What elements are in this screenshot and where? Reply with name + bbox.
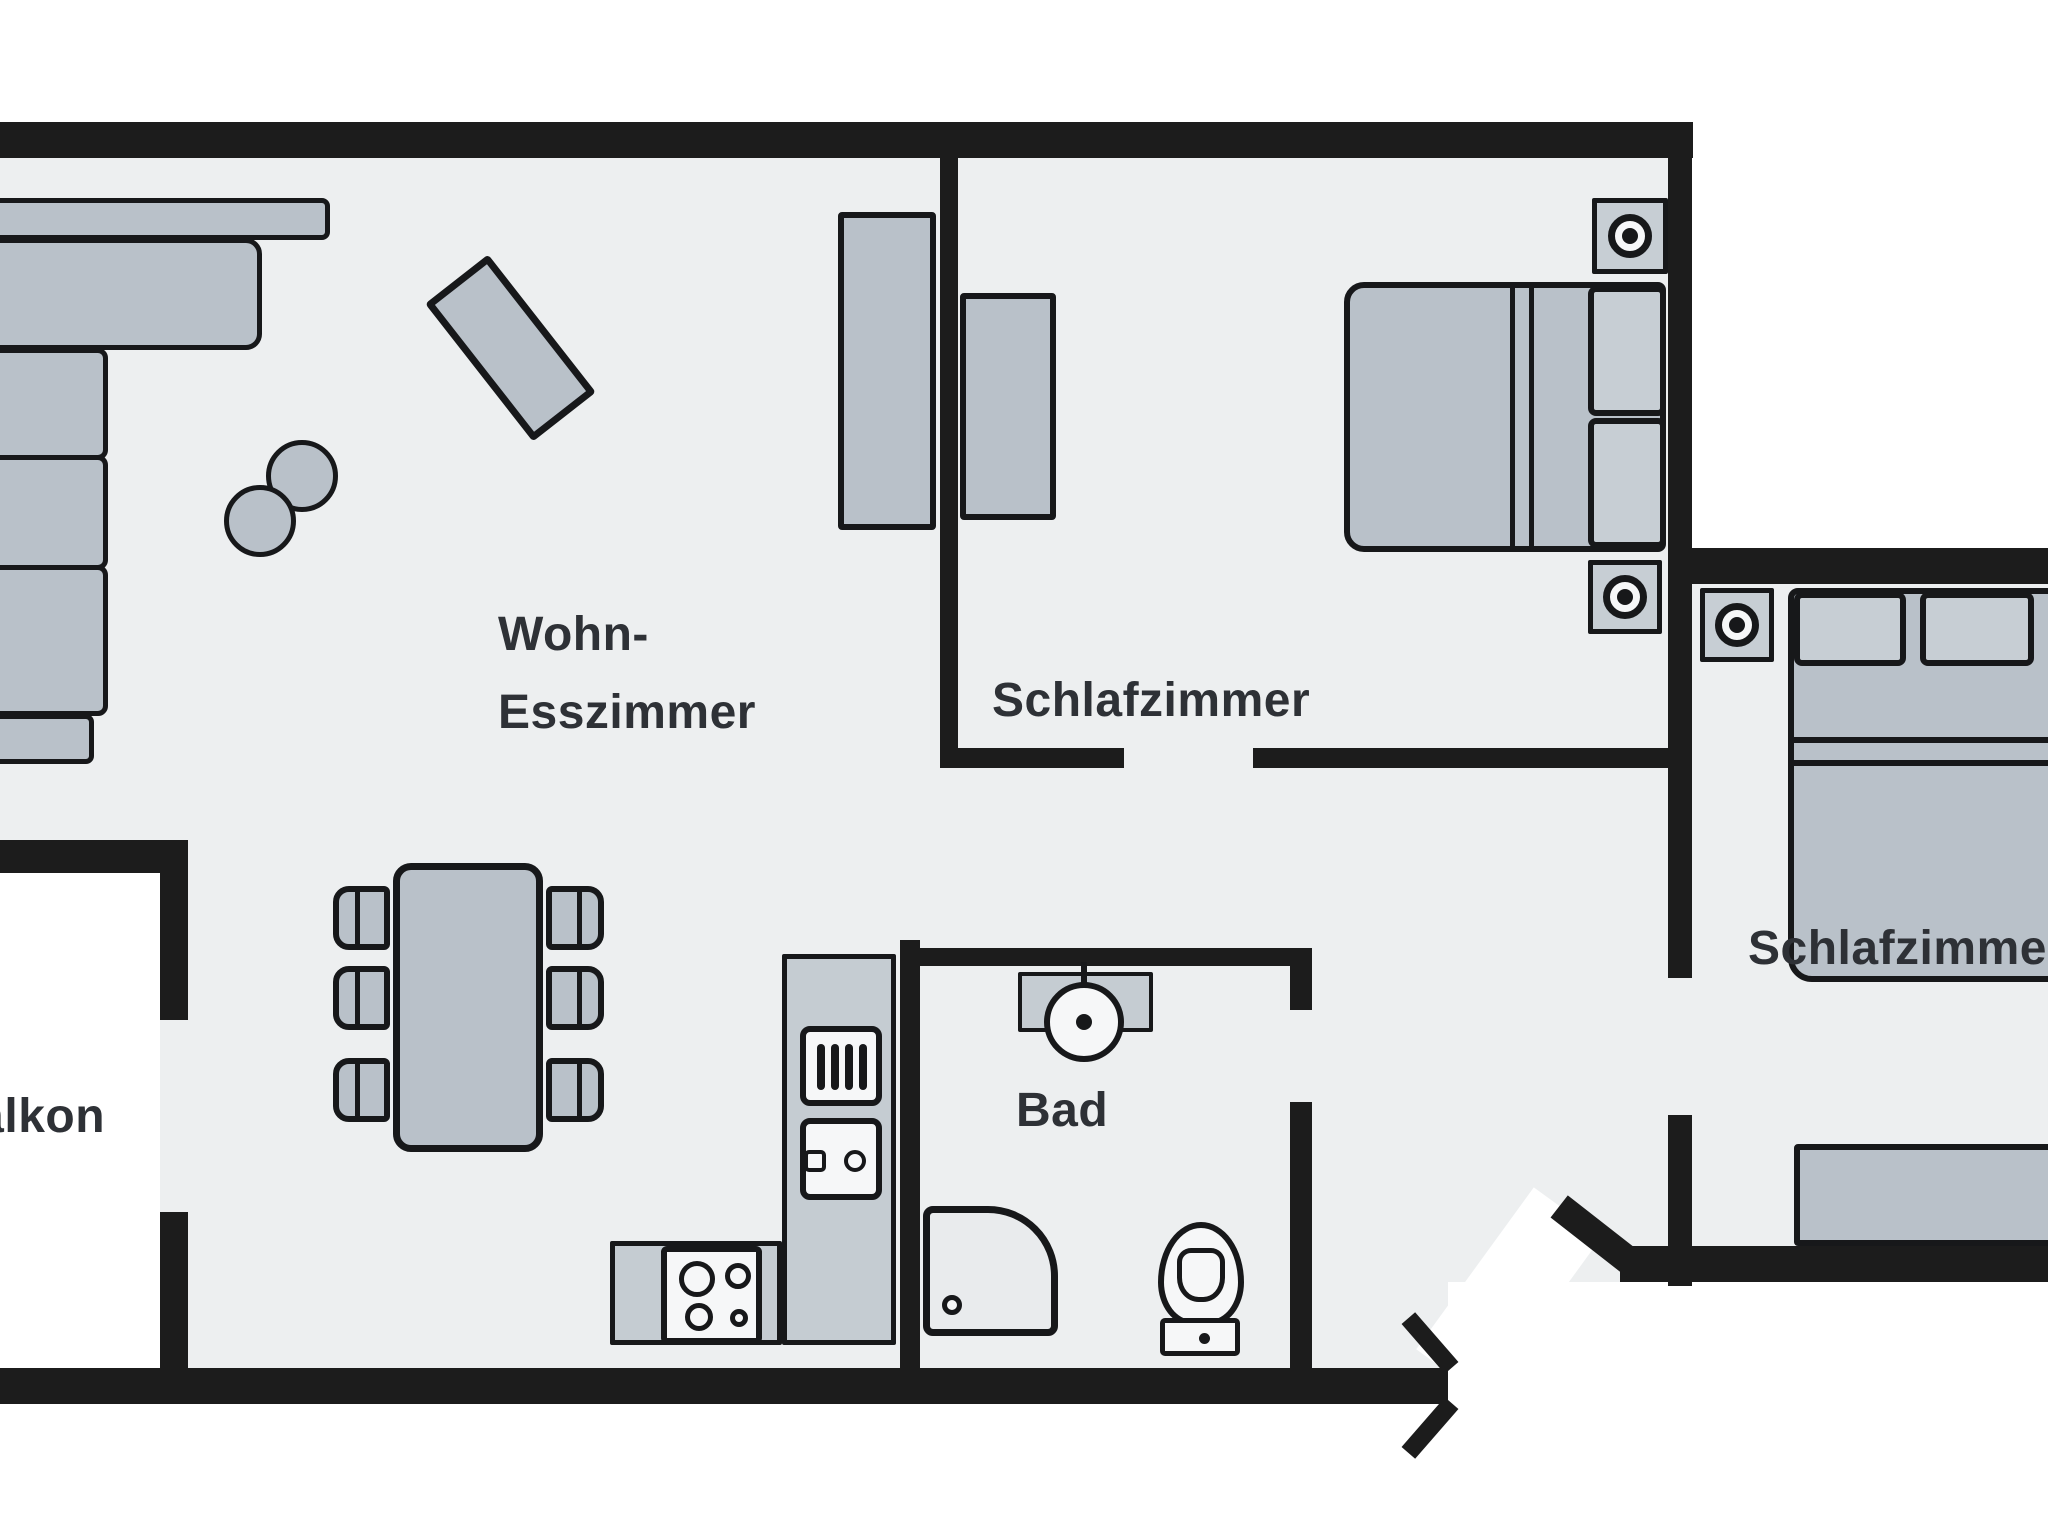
dining-chair — [333, 1058, 390, 1122]
room-label-living: Wohn- Esszimmer — [498, 596, 756, 752]
room-label-bathroom: Bad — [1016, 1072, 1108, 1150]
wall-bedroom1-bottom-left — [940, 748, 1124, 768]
dining-chair — [546, 886, 604, 950]
sofa-seat-top — [0, 238, 262, 350]
wardrobe-bedroom1 — [960, 293, 1056, 520]
room-label-balcony: Balkon — [0, 1078, 105, 1156]
wall-bottom-exterior — [0, 1368, 1448, 1404]
wall-top-exterior — [0, 122, 1693, 158]
nightstand-lamp-icon — [1588, 560, 1662, 634]
dining-chair — [546, 966, 604, 1030]
wall-bedroom2-top — [1692, 548, 2048, 584]
sofa-seat-2 — [0, 455, 108, 570]
wall-bath-right-lower — [1290, 1102, 1312, 1368]
wall-bath-right-upper — [1290, 948, 1312, 1010]
room-label-bedroom1: Schlafzimmer — [992, 662, 1310, 740]
nightstand-lamp-icon — [1700, 588, 1774, 662]
wall-bedroom2-bottom — [1620, 1246, 2048, 1282]
wall-bedroom1-bottom-right — [1253, 748, 1670, 768]
dining-chair — [333, 886, 390, 950]
wall-bath-left — [900, 940, 920, 1368]
dresser-bedroom2 — [1794, 1144, 2048, 1246]
pillow — [1794, 592, 1906, 666]
wardrobe-living — [838, 212, 936, 530]
kitchen-sink-icon — [800, 1118, 882, 1200]
sofa-seat-3 — [0, 565, 108, 716]
pillow — [1588, 286, 1666, 416]
room-label-bedroom2: Schlafzimmer — [1748, 910, 2048, 988]
living-label-line1: Wohn- — [498, 596, 756, 674]
dishwasher-icon — [800, 1026, 882, 1106]
pouf-left — [224, 485, 296, 557]
wall-balcony-lower-stub — [160, 1212, 188, 1368]
floor-plan: Wohn- Esszimmer Schlafzimmer Schlafzimme… — [0, 0, 2048, 1538]
pillow — [1588, 418, 1666, 548]
sofa-backrest — [0, 198, 330, 240]
living-label-line2: Esszimmer — [498, 674, 756, 752]
wall-balcony-upper-stub — [160, 840, 188, 1020]
stove-icon — [661, 1246, 762, 1344]
dining-table — [393, 863, 543, 1152]
sofa-armrest — [0, 714, 94, 764]
wall-living-bedroom1 — [940, 158, 958, 768]
sofa-seat-1 — [0, 348, 108, 460]
wall-bath-top — [920, 948, 1312, 966]
bath-sink-drain — [1076, 1014, 1092, 1030]
dining-chair — [333, 966, 390, 1030]
bed1-fold-line — [1510, 288, 1515, 546]
wall-right-shared — [1668, 158, 1692, 978]
entry-door-jamb-lower — [1402, 1397, 1459, 1459]
toilet-cistern-icon — [1160, 1318, 1240, 1356]
bed2-fold-line — [1790, 760, 2048, 766]
pillow — [1920, 592, 2034, 666]
nightstand-lamp-icon — [1592, 198, 1668, 274]
bed2-fold-line — [1790, 737, 2048, 743]
bed1-fold-line — [1529, 288, 1534, 546]
dining-chair — [546, 1058, 604, 1122]
